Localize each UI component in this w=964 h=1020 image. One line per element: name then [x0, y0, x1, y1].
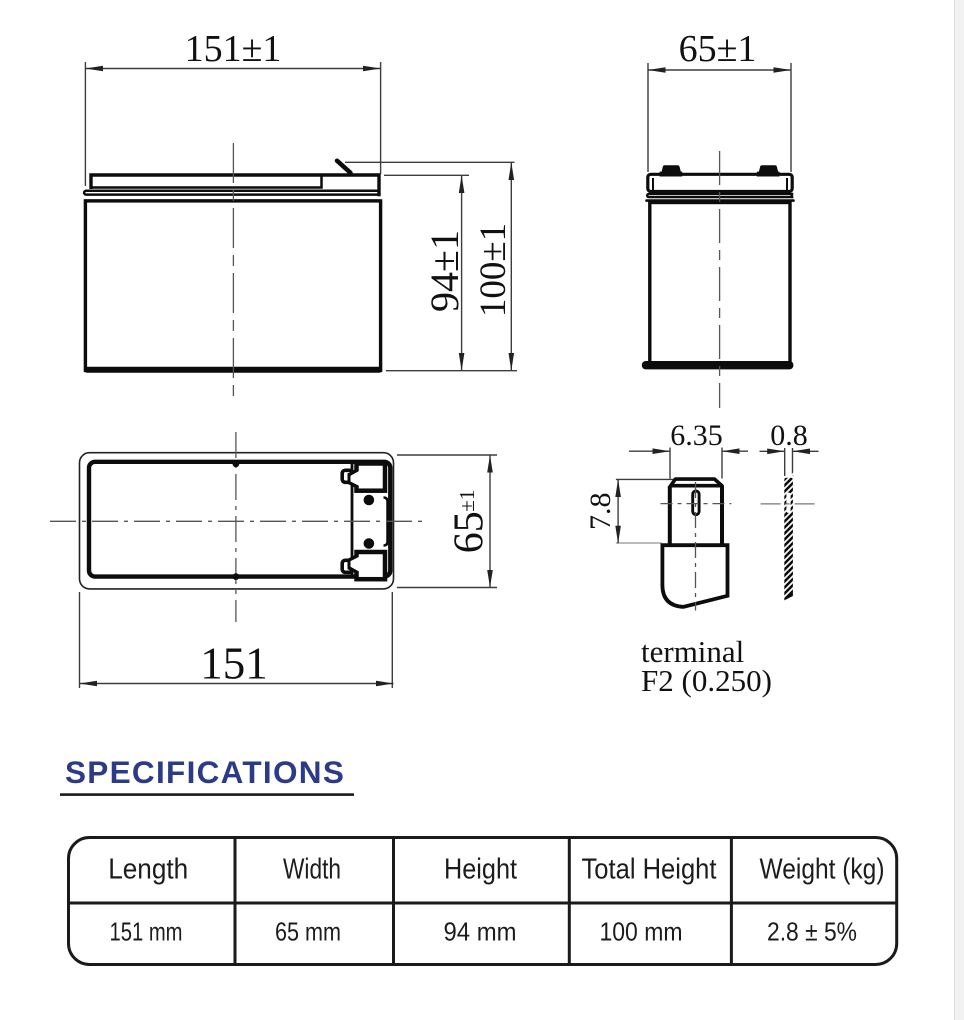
- svg-text:Height: Height: [444, 854, 517, 886]
- svg-text:100±1: 100±1: [473, 223, 514, 317]
- svg-text:151: 151: [200, 639, 268, 689]
- svg-text:6.35: 6.35: [670, 419, 723, 452]
- svg-text:Length: Length: [108, 854, 188, 886]
- svg-text:SPECIFICATIONS: SPECIFICATIONS: [65, 754, 345, 790]
- svg-text:65±1: 65±1: [679, 28, 757, 70]
- svg-text:65: 65: [447, 511, 493, 553]
- svg-text:65 mm: 65 mm: [275, 917, 341, 947]
- svg-text:Width: Width: [283, 854, 341, 886]
- svg-text:94 mm: 94 mm: [444, 917, 517, 947]
- svg-text:0.8: 0.8: [770, 419, 808, 452]
- svg-text:Total Height: Total Height: [582, 854, 717, 886]
- svg-text:F2 (0.250): F2 (0.250): [641, 663, 772, 698]
- svg-text:7.8: 7.8: [584, 493, 617, 531]
- svg-text:±1: ±1: [455, 490, 479, 512]
- svg-text:94±1: 94±1: [422, 230, 467, 312]
- svg-text:100 mm: 100 mm: [600, 917, 683, 947]
- svg-text:Weight (kg): Weight (kg): [760, 854, 885, 886]
- svg-text:151±1: 151±1: [185, 28, 282, 70]
- svg-text:2.8 ± 5%: 2.8 ± 5%: [767, 917, 857, 947]
- svg-text:151 mm: 151 mm: [110, 917, 183, 947]
